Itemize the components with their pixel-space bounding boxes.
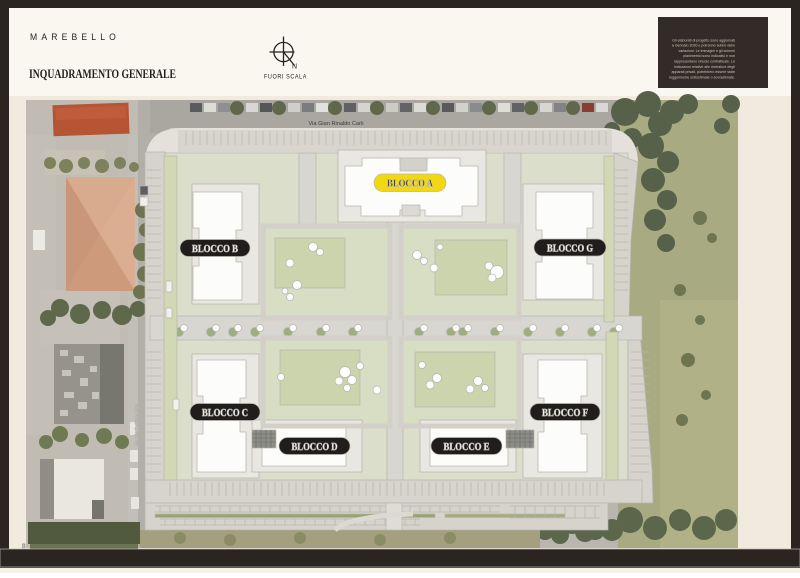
svg-text:MAREBELLO: MAREBELLO [30, 32, 120, 43]
svg-text:BLOCCO B: BLOCCO B [192, 244, 238, 255]
svg-text:leggermente sottostimate o sov: leggermente sottostimate o sovrastimate. [669, 75, 735, 79]
svg-text:BLOCCO D: BLOCCO D [292, 442, 338, 453]
svg-text:Gli elaborati di progetto sono: Gli elaborati di progetto sono aggiornat… [672, 38, 735, 42]
svg-text:planimetrici sono indicativi e: planimetrici sono indicativi e non [683, 54, 735, 58]
svg-text:INQUADRAMENTO GENERALE: INQUADRAMENTO GENERALE [29, 67, 176, 81]
svg-text:a Gennaio 2020 e potranno subi: a Gennaio 2020 e potranno subire delle [672, 44, 735, 48]
svg-text:BLOCCO G: BLOCCO G [547, 244, 593, 255]
svg-text:apparati privati, potrebbero e: apparati privati, potrebbero essere stat… [671, 70, 735, 74]
svg-text:variazioni. Le immagini e gli: variazioni. Le immagini e gli schemi [678, 49, 735, 53]
svg-text:Via Gianbattista Vigo: Via Gianbattista Vigo [134, 403, 139, 446]
svg-text:Via Gian Rinaldo Carli: Via Gian Rinaldo Carli [309, 121, 364, 127]
svg-text:N: N [292, 64, 297, 71]
svg-text:BLOCCO F: BLOCCO F [542, 408, 588, 419]
svg-text:BLOCCO E: BLOCCO E [444, 442, 490, 453]
svg-text:BLOCCO C: BLOCCO C [202, 408, 248, 419]
svg-text:rappresentano vincolo contratt: rappresentano vincolo contrattuale. Le [674, 60, 735, 64]
svg-text:BLOCCO A: BLOCCO A [387, 179, 433, 190]
svg-text:FUORI SCALA: FUORI SCALA [264, 74, 307, 81]
svg-text:indicazioni relative alle metr: indicazioni relative alle metrature degl… [674, 65, 735, 69]
